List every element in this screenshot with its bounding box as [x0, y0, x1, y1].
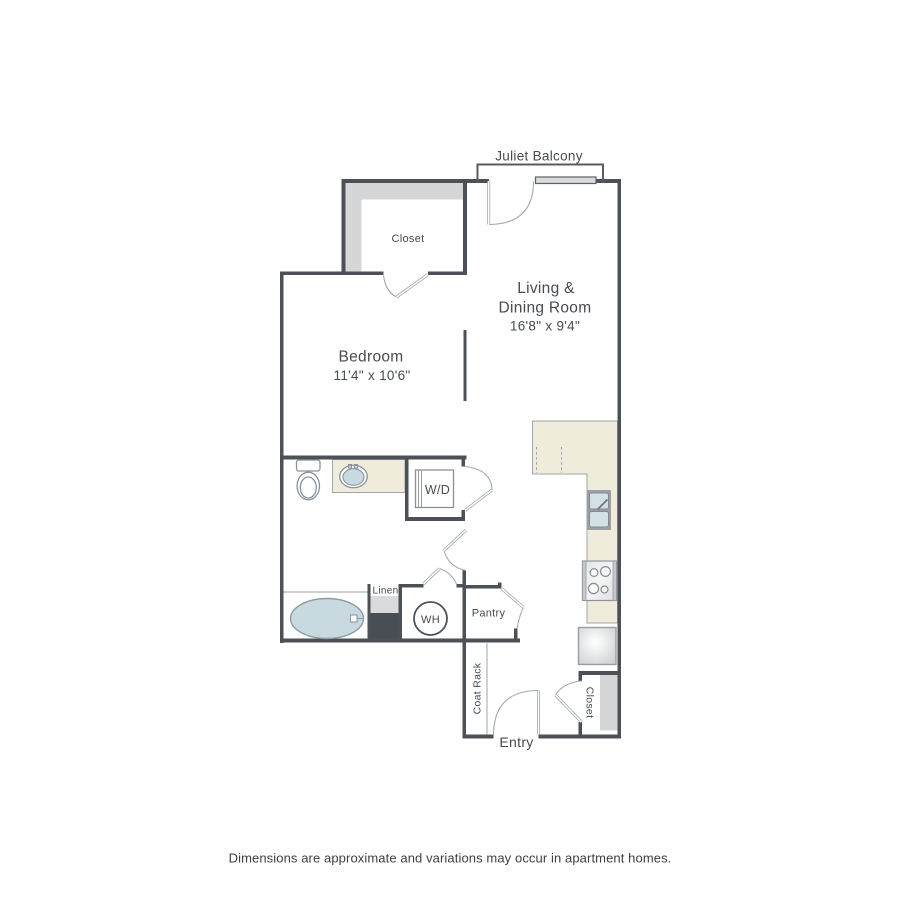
wall-segment — [405, 456, 409, 521]
wall-segment — [462, 460, 466, 467]
living-room-dimensions: 16'8" x 9'4" — [510, 319, 580, 334]
wall-segment — [463, 179, 467, 275]
entry-label: Entry — [499, 734, 533, 750]
bathroom-sink — [340, 465, 368, 488]
upper-closet-label: Closet — [392, 233, 425, 245]
toilet — [297, 460, 321, 500]
wall-segment — [579, 722, 583, 735]
wall-segment — [463, 179, 489, 183]
door-swing-arc — [494, 691, 539, 735]
closet-shelf-band-left — [346, 183, 362, 272]
wall-segment — [280, 456, 467, 460]
wall-segment — [579, 671, 622, 675]
footer-disclaimer: Dimensions are approximate and variation… — [229, 851, 672, 866]
wall-segment — [514, 629, 518, 643]
bedroom-label: Bedroom — [339, 349, 404, 366]
stove-burner — [601, 567, 611, 577]
bathtub-faucet — [351, 615, 358, 622]
door-panel — [556, 695, 582, 722]
closet-upper-shelving — [346, 183, 464, 272]
door-panel — [424, 569, 440, 585]
living-room-label-line2: Dining Room — [499, 300, 592, 317]
washer-dryer-label: W/D — [425, 483, 450, 497]
bedroom-dimensions: 11'4" x 10'6" — [334, 368, 411, 383]
wall-segment — [457, 584, 467, 588]
wall-segment — [463, 570, 467, 739]
wall-segment — [618, 179, 622, 739]
door-swing-arc — [517, 608, 524, 629]
wall-segment — [463, 735, 494, 739]
balcony-label: Juliet Balcony — [495, 149, 583, 164]
living-room-label-line1: Living & — [517, 280, 575, 297]
closet-shelf-band-top — [346, 183, 464, 200]
stove — [583, 561, 617, 601]
wall-segment — [342, 179, 468, 183]
wall-segment — [399, 584, 403, 641]
entry-closet-label: Closet — [584, 687, 596, 719]
toilet-bowl-inner — [300, 477, 316, 498]
balcony-rail — [536, 177, 597, 184]
wall-segment — [539, 735, 622, 739]
stove-side-bar — [613, 561, 617, 601]
wall-segment — [399, 584, 424, 588]
door-swing-arc — [465, 467, 492, 491]
door-swing-arc — [444, 551, 466, 571]
wall-segment — [579, 675, 583, 681]
stove-burner — [588, 583, 598, 593]
door-panel — [444, 530, 466, 551]
door-panel — [465, 490, 492, 511]
wall-segment — [466, 585, 498, 589]
bathtub — [291, 599, 364, 639]
floor-plan-drawing: Juliet Balcony Closet Living & Dining Ro… — [0, 0, 900, 900]
coat-rack-label: Coat Rack — [472, 662, 484, 714]
linen-cabinet — [371, 613, 399, 639]
wall-segment — [462, 510, 466, 521]
kitchen-sink — [587, 490, 612, 530]
linen-shelf — [371, 596, 399, 613]
kitchen-sink-basin — [590, 512, 609, 528]
door-swing-arc — [489, 182, 534, 225]
stove-burner — [601, 586, 608, 593]
wall-segment — [368, 584, 371, 641]
door-panel — [502, 589, 524, 608]
bedroom-partition-wall — [464, 330, 467, 401]
door-swing-arc — [440, 569, 457, 585]
sink-basin — [343, 469, 364, 486]
wall-segment — [280, 272, 384, 276]
wall-segment — [428, 272, 467, 276]
pantry-label: Pantry — [472, 608, 506, 620]
refrigerator — [579, 628, 617, 665]
entry-closet-shelf-band — [600, 675, 618, 731]
stove-side-bar — [583, 561, 587, 601]
wall-segment — [280, 639, 520, 643]
stove-burner — [590, 569, 598, 577]
floor-plan-page: Juliet Balcony Closet Living & Dining Ro… — [0, 0, 900, 900]
toilet-tank — [297, 460, 321, 471]
stove-body — [583, 561, 617, 601]
door-panel — [397, 275, 429, 298]
wall-segment — [342, 179, 346, 273]
door-swing-arc — [556, 681, 582, 695]
wall-segment — [405, 517, 465, 521]
linen-label: Linen — [373, 586, 399, 597]
door-swing-arc — [384, 276, 397, 298]
water-heater-label: WH — [421, 614, 440, 626]
wall-segment — [596, 179, 621, 183]
wall-segment — [498, 583, 502, 589]
